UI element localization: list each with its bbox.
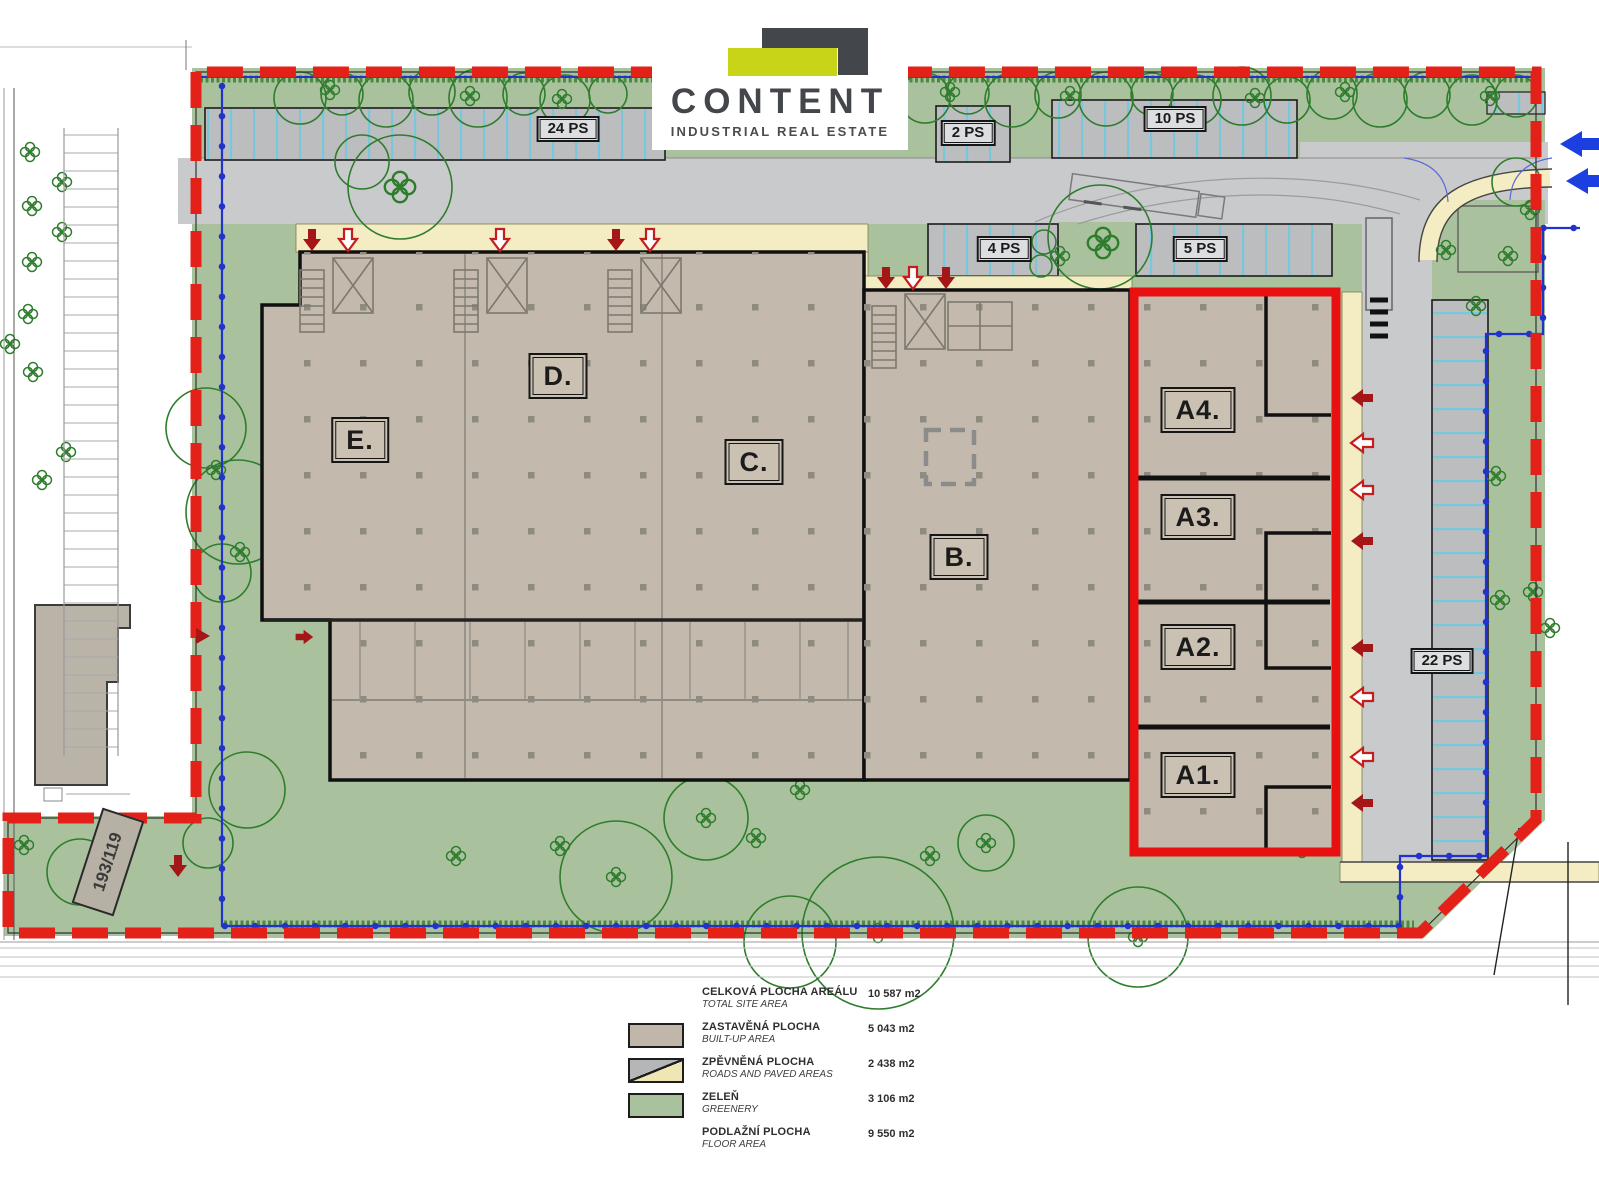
logo-mark-dark-block (838, 48, 868, 75)
legend-row-paved-area: ZPĚVNĚNÁ PLOCHA ROADS AND PAVED AREAS 2 … (628, 1056, 921, 1083)
building-label-B: B. (930, 534, 989, 580)
legend-row-greenery: ZELEŇ GREENERY 3 106 m2 (628, 1091, 921, 1118)
building-label-A4: A4. (1160, 387, 1235, 433)
legend-row-floor-area: PODLAŽNÍ PLOCHA FLOOR AREA 9 550 m2 (628, 1126, 921, 1153)
parking-label-5ps: 5 PS (1173, 236, 1228, 262)
site-plan: E. D. C. B. A4. A3. A2. A1. 24 PS 2 PS 1… (0, 0, 1599, 1199)
building-EDC (262, 252, 864, 780)
building-B (864, 290, 1130, 780)
parking-label-2ps: 2 PS (941, 120, 996, 146)
legend-label-cs: PODLAŽNÍ PLOCHA (702, 1126, 868, 1139)
area-legend: CELKOVÁ PLOCHA AREÁLU TOTAL SITE AREA 10… (628, 986, 921, 1161)
parking-label-10ps: 10 PS (1144, 106, 1207, 132)
legend-value: 9 550 m2 (868, 1126, 914, 1140)
legend-row-built-up-area: ZASTAVĚNÁ PLOCHA BUILT-UP AREA 5 043 m2 (628, 1021, 921, 1048)
legend-label-cs: ZELEŇ (702, 1091, 868, 1104)
building-label-A2: A2. (1160, 624, 1235, 670)
logo-tagline: INDUSTRIAL REAL ESTATE (652, 124, 908, 139)
legend-label-en: TOTAL SITE AREA (702, 999, 868, 1011)
building-label-E: E. (331, 417, 389, 463)
parking-strip-22ps (1432, 300, 1488, 860)
legend-label-cs: ZPĚVNĚNÁ PLOCHA (702, 1056, 868, 1069)
legend-value: 5 043 m2 (868, 1021, 914, 1035)
parking-strip-5ps (1136, 224, 1332, 276)
logo-mark-dark-bar (762, 28, 868, 48)
legend-label-en: FLOOR AREA (702, 1139, 868, 1151)
building-label-A1: A1. (1160, 752, 1235, 798)
building-label-A3: A3. (1160, 494, 1235, 540)
building-label-D: D. (529, 353, 588, 399)
legend-label-cs: ZASTAVĚNÁ PLOCHA (702, 1021, 868, 1034)
legend-value: 3 106 m2 (868, 1091, 914, 1105)
legend-swatch-built-up (628, 1023, 684, 1048)
legend-label-en: GREENERY (702, 1104, 868, 1116)
parking-label-24ps: 24 PS (537, 116, 600, 142)
parking-label-22ps: 22 PS (1411, 648, 1474, 674)
legend-value: 10 587 m2 (868, 986, 921, 1000)
logo-mark-green-block (728, 48, 837, 76)
building-label-C: C. (725, 439, 784, 485)
legend-swatch-none (628, 988, 684, 1013)
legend-swatch-paved (628, 1058, 684, 1083)
legend-label-en: ROADS AND PAVED AREAS (702, 1069, 868, 1081)
logo-name: CONTENT (652, 82, 908, 122)
legend-label-en: BUILT-UP AREA (702, 1034, 868, 1046)
parking-label-4ps: 4 PS (977, 236, 1032, 262)
legend-row-total-site-area: CELKOVÁ PLOCHA AREÁLU TOTAL SITE AREA 10… (628, 986, 921, 1013)
legend-value: 2 438 m2 (868, 1056, 914, 1070)
legend-swatch-greenery (628, 1093, 684, 1118)
company-logo: CONTENT INDUSTRIAL REAL ESTATE (652, 0, 908, 150)
legend-swatch-none (628, 1128, 684, 1153)
legend-label-cs: CELKOVÁ PLOCHA AREÁLU (702, 986, 868, 999)
